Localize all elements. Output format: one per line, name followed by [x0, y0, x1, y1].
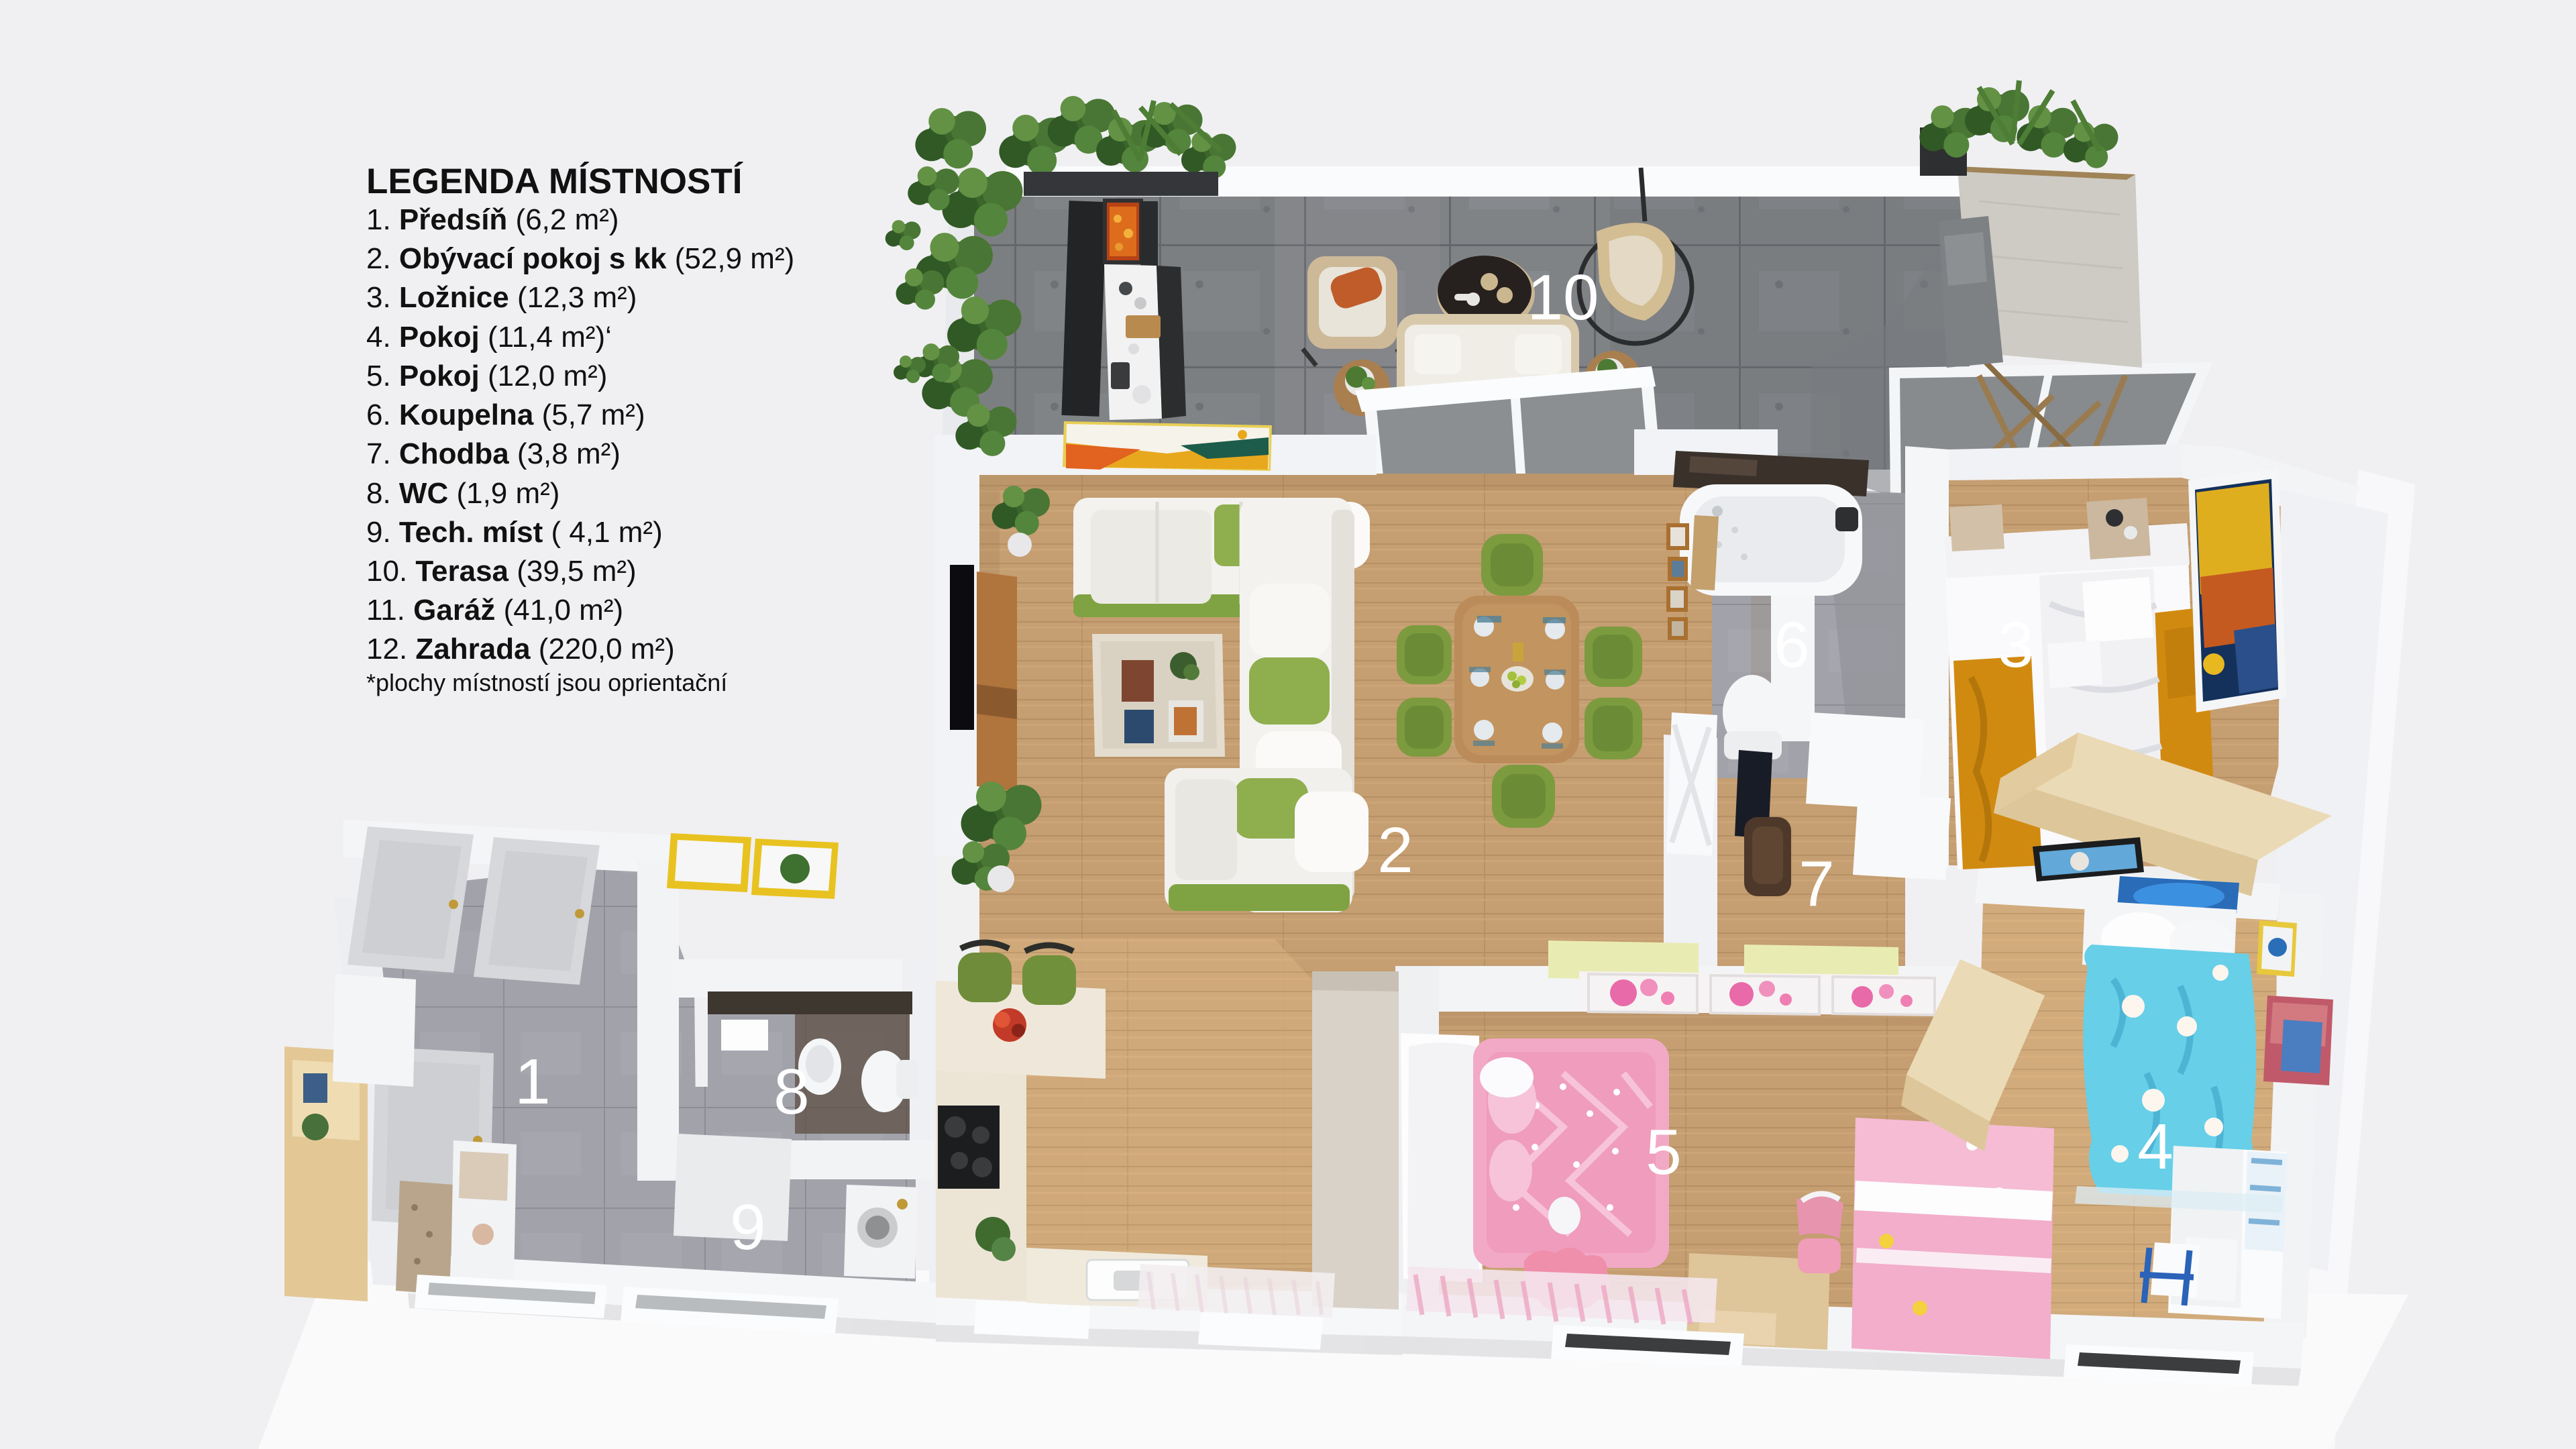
- svg-text:4: 4: [2137, 1111, 2173, 1183]
- svg-text:9: 9: [730, 1191, 765, 1263]
- svg-text:9. Tech. míst ( 4,1 m²): 9. Tech. míst ( 4,1 m²): [366, 516, 663, 549]
- svg-text:4. Pokoj (11,4 m²)‘: 4. Pokoj (11,4 m²)‘: [366, 321, 612, 354]
- svg-text:2: 2: [1377, 814, 1413, 886]
- svg-text:5: 5: [1646, 1116, 1681, 1188]
- svg-text:2. Obývací pokoj s kk (52,9 m: 2. Obývací pokoj s kk (52,9 m²): [366, 242, 794, 275]
- svg-text:12. Zahrada (220,0 m²): 12. Zahrada (220,0 m²): [366, 633, 675, 665]
- svg-text:LEGENDA MÍSTNOSTÍ: LEGENDA MÍSTNOSTÍ: [366, 161, 743, 201]
- svg-text:1: 1: [515, 1046, 550, 1118]
- svg-text:11. Garáž (41,0 m²): 11. Garáž (41,0 m²): [366, 594, 623, 627]
- svg-text:10: 10: [1527, 262, 1599, 333]
- svg-text:1. Předsíň (6,2 m²): 1. Předsíň (6,2 m²): [366, 203, 619, 236]
- svg-text:5. Pokoj (12,0 m²): 5. Pokoj (12,0 m²): [366, 360, 607, 392]
- svg-text:6: 6: [1774, 609, 1809, 681]
- svg-text:*plochy místností jsou oprient: *plochy místností jsou oprientační: [366, 669, 727, 696]
- svg-text:3: 3: [1998, 609, 2033, 681]
- svg-text:8: 8: [773, 1056, 809, 1128]
- svg-text:10. Terasa (39,5 m²): 10. Terasa (39,5 m²): [366, 555, 637, 588]
- svg-text:7: 7: [1799, 848, 1834, 920]
- svg-text:3. Ložnice (12,3 m²): 3. Ložnice (12,3 m²): [366, 281, 637, 314]
- svg-text:7. Chodba (3,8 m²): 7. Chodba (3,8 m²): [366, 437, 621, 470]
- svg-text:8. WC (1,9 m²): 8. WC (1,9 m²): [366, 477, 559, 510]
- svg-text:6. Koupelna (5,7 m²): 6. Koupelna (5,7 m²): [366, 398, 645, 431]
